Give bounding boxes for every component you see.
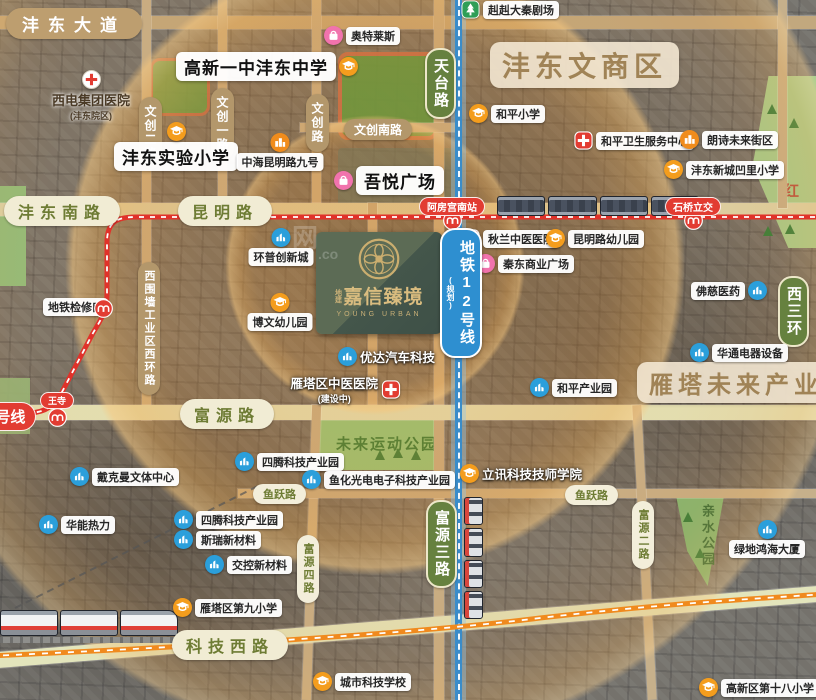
road-pill-14: 富源三路 [426, 500, 457, 588]
poi-label: 雁塔区中医医院(建设中) [290, 373, 378, 405]
poi-label: 佛慈医药 [691, 282, 745, 300]
company-icon [690, 343, 709, 362]
poi-label: 交控新材料 [227, 556, 292, 574]
poi-label: 环普创新城 [249, 248, 314, 266]
school-icon [699, 678, 718, 697]
road-pill-12: 鱼跃路 [565, 485, 618, 505]
poi-label: 戴克曼文体中心 [92, 468, 179, 486]
poi-label: 华通电器设备 [712, 344, 788, 362]
school-icon [664, 160, 683, 179]
company-icon [272, 228, 291, 247]
poi-label: 博文幼儿园 [248, 313, 313, 331]
company-icon [748, 281, 767, 300]
poi-label: 斯瑞新材料 [196, 531, 261, 549]
company-icon [174, 530, 193, 549]
poi-label: 赳赳大秦剧场 [483, 1, 559, 19]
poi-school-2: 高新一中沣东中学 [176, 52, 358, 81]
poi-label: 沣东实验小学 [114, 142, 238, 171]
poi-hospital-6: 和平卫生服务中心 [574, 131, 694, 150]
road-pill-16: 科技西路 [172, 630, 288, 660]
school-icon [271, 293, 290, 312]
poi-bldg-7: 朗诗未来街区 [680, 130, 778, 149]
poi-company-23: 四腾科技产业园 [235, 452, 344, 471]
poi-school-5: 和平小学 [469, 104, 545, 123]
poi-sublabel: (沣东院区) [52, 109, 130, 122]
poi-company-17: 和平产业园 [530, 378, 617, 397]
metro-train-line12 [464, 497, 483, 619]
poi-shop-3: 奥特莱斯 [324, 26, 400, 45]
bldg-icon [680, 130, 699, 149]
area-label-1: 雁塔未来产业区 [637, 362, 816, 403]
poi-school-8: 沣东新城凹里小学 [664, 160, 784, 179]
poi-label: 和平小学 [491, 105, 545, 123]
road-pill-4: 文创南路 [344, 119, 412, 140]
school-icon [339, 57, 358, 76]
poi-label: 中海昆明路九号 [237, 153, 324, 171]
metro-line12-label: 地铁12号线 [458, 240, 475, 346]
metro-station-pill-2: 王寺 [40, 392, 74, 409]
poi-shop-14: 秦东商业广场 [476, 254, 574, 273]
poi-label: 高新一中沣东中学 [176, 52, 336, 81]
road-pill-8: 西围墙工业区西环路 [138, 262, 160, 395]
road-pill-0: 沣东大道 [6, 8, 142, 39]
area-label-0: 沣东文商区 [490, 42, 679, 88]
poi-label: 秦东商业广场 [498, 255, 574, 273]
project-subtitle: YOUNG URBAN [336, 311, 421, 318]
road-pill-9: 西三环 [778, 276, 809, 347]
bldg-icon [271, 133, 290, 152]
poi-label: 鱼化光电电子科技产业园 [324, 471, 455, 489]
poi-label: 华能热力 [61, 516, 115, 534]
hospital-icon [574, 131, 593, 150]
poi-label: 朗诗未来街区 [702, 131, 778, 149]
poi-label: 沣东新城凹里小学 [686, 161, 784, 179]
school-icon [173, 598, 192, 617]
project-prefix: 地建 [334, 289, 341, 303]
watermark-text-2: .co [318, 246, 338, 262]
project-emblem-icon [357, 237, 401, 281]
poi-label: 四腾科技产业园 [196, 511, 283, 529]
school-icon [460, 464, 479, 483]
road-pill-7: 昆明路 [178, 196, 272, 226]
school-icon [546, 229, 565, 248]
metro-station-pill-3: 1号线 [0, 402, 36, 431]
poi-company-15: 佛慈医药 [691, 281, 767, 300]
poi-school-31: 城市科技学校 [313, 672, 411, 691]
road-pill-13: 富源四路 [297, 535, 319, 603]
poi-label: 奥特莱斯 [346, 27, 400, 45]
poi-company-28: 斯瑞新材料 [174, 530, 261, 549]
company-icon [338, 347, 357, 366]
poi-label: 雁塔区第九小学 [195, 599, 282, 617]
poi-school-19: 博文幼儿园 [248, 293, 313, 331]
poi-label: 立讯科技技师学院 [482, 464, 582, 483]
poi-company-29: 交控新材料 [205, 555, 292, 574]
train-side-view [0, 610, 178, 636]
poi-company-24: 鱼化光电电子科技产业园 [302, 470, 455, 489]
poi-school-33: 高新区第十八小学 [699, 678, 816, 697]
road-pill-11: 鱼跃路 [253, 484, 306, 504]
poi-company-22: 戴克曼文体中心 [70, 467, 179, 486]
road-pill-15: 富源二路 [632, 501, 654, 569]
map-canvas[interactable]: 红光 未来运动公园 亲水公园 地铁12号线(规划) [0, 0, 816, 700]
poi-school-30: 雁塔区第九小学 [173, 598, 282, 617]
company-icon [205, 555, 224, 574]
hospital-icon [381, 380, 400, 399]
poi-hospital-w-0: 西电集团医院(沣东院区) [52, 70, 130, 122]
project-name: 嘉信臻境 [343, 282, 423, 309]
poi-school-25: 立讯科技技师学院 [460, 464, 582, 483]
poi-label: 绿地鸿海大厦 [729, 540, 805, 558]
hospital-w-icon [81, 70, 100, 89]
metro-logo-icon [48, 408, 67, 427]
poi-theater-4: 赳赳大秦剧场 [461, 0, 559, 19]
company-icon [530, 378, 549, 397]
company-icon [302, 470, 321, 489]
poi-company-32: 绿地鸿海大厦 [729, 520, 805, 558]
poi-company-11: 环普创新城 [249, 228, 314, 266]
school-icon [313, 672, 332, 691]
poi-bldg-9: 中海昆明路九号 [237, 133, 324, 171]
poi-label: 和平产业园 [552, 379, 617, 397]
poi-label: 吾悦广场 [356, 166, 444, 195]
poi-school-1: 沣东实验小学 [114, 122, 238, 171]
school-icon [469, 104, 488, 123]
company-icon [70, 467, 89, 486]
metro-line12-sublabel: (规划) [445, 240, 456, 346]
poi-hospital-21: 雁塔区中医医院(建设中) [290, 373, 400, 405]
company-icon [174, 510, 193, 529]
poi-shop-10: 吾悦广场 [334, 166, 444, 195]
poi-company-26: 华能热力 [39, 515, 115, 534]
road-pill-5: 天台路 [425, 48, 456, 119]
poi-school-13: 昆明路幼儿园 [546, 229, 644, 248]
poi-label: 优达汽车科技 [360, 347, 435, 366]
poi-company-27: 四腾科技产业园 [174, 510, 283, 529]
metro-station-pill-1: 石桥立交 [665, 197, 721, 216]
poi-sublabel: (建设中) [290, 392, 378, 405]
poi-label: 西电集团医院(沣东院区) [52, 90, 130, 122]
company-icon [39, 515, 58, 534]
theater-icon [461, 0, 480, 19]
metro-line12-pill: 地铁12号线(规划) [440, 228, 482, 358]
poi-label: 城市科技学校 [335, 673, 411, 691]
metro-logo-icon [94, 299, 113, 318]
poi-label: 四腾科技产业园 [257, 453, 344, 471]
shop-icon [334, 171, 353, 190]
poi-company-16: 华通电器设备 [690, 343, 788, 362]
road-pill-6: 沣东南路 [4, 196, 120, 226]
company-icon [758, 520, 777, 539]
poi-company-20: 优达汽车科技 [338, 347, 435, 366]
poi-label: 高新区第十八小学 [721, 679, 816, 697]
company-icon [235, 452, 254, 471]
school-icon [167, 122, 186, 141]
road-pill-10: 富源路 [180, 399, 274, 429]
metro-station-pill-0: 阿房宫南站 [419, 197, 485, 216]
shop-icon [324, 26, 343, 45]
poi-label: 昆明路幼儿园 [568, 230, 644, 248]
